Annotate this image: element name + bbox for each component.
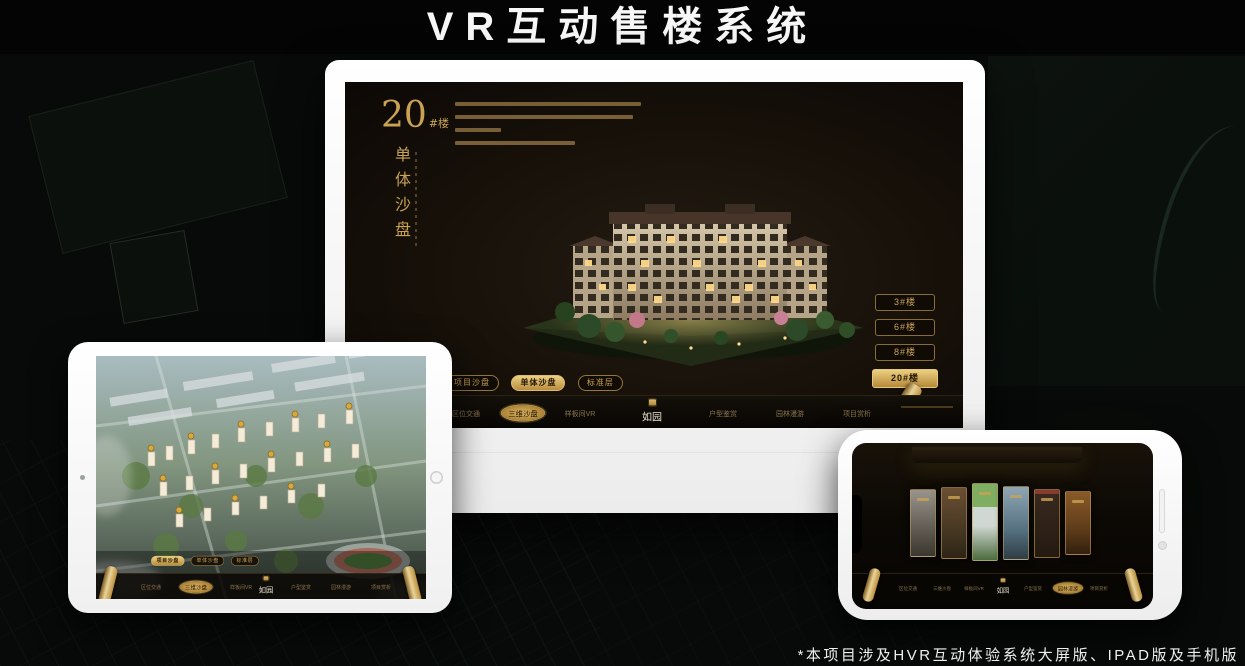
building-number-heading: 20#楼 (381, 98, 449, 134)
phone-nav-item-3d-sandtable[interactable]: 三维沙盘 (933, 583, 951, 591)
tablet-nav-item-location-traffic[interactable]: 区位交通 (141, 583, 161, 592)
nav-item-project-gallery[interactable]: 项目赏析 (843, 406, 871, 419)
description-line (455, 115, 633, 119)
phone-nav-item-model-room-vr[interactable]: 样板间VR (964, 583, 984, 591)
tablet-nav-bar: 区位交通 三维沙盘 样板间VR 如园 户型鉴赏 园林漫游 项目赏析 (96, 573, 426, 599)
phone-scene-ceiling (912, 447, 1082, 463)
nav-item-location-traffic[interactable]: 区位交通 (452, 406, 480, 419)
panel-label-ornament (917, 498, 929, 501)
description-line (455, 128, 501, 132)
promo-poster: VR互动售楼系统 20#楼 单体沙盘 (0, 0, 1245, 666)
panel-label-ornament (979, 492, 991, 495)
tab-project-sandtable[interactable]: 项目沙盘 (445, 375, 499, 391)
ruyuan-seal-icon (263, 576, 269, 582)
tablet-tab-row: 项目沙盘 单体沙盘 标准层 (151, 554, 259, 566)
building-number: 20 (381, 95, 427, 136)
gallery-panel-interior[interactable] (941, 487, 967, 559)
brand-logo: 如园 (642, 398, 662, 425)
description-line (455, 141, 575, 145)
floor-button-6[interactable]: 6#楼 (875, 319, 935, 336)
tablet-tab-standard-floor[interactable]: 标准层 (231, 556, 259, 566)
phone-camera-dot (1159, 542, 1166, 549)
panel-label-ornament (948, 496, 960, 499)
tablet-screen: 项目沙盘 单体沙盘 标准层 区位交通 三维沙盘 样板间VR 如园 户型鉴赏 园林… (96, 356, 426, 599)
nav-item-model-room-vr[interactable]: 样板间VR (565, 406, 596, 419)
gallery-panel-study[interactable] (1065, 491, 1091, 555)
desktop-tab-row: 项目沙盘 单体沙盘 标准层 (445, 372, 623, 391)
page-title: VR互动售楼系统 (0, 0, 1245, 54)
tablet-nav-item-model-room-vr[interactable]: 样板间VR (230, 583, 252, 592)
section-title-vertical: 单体沙盘 (389, 146, 413, 246)
tablet-home-button (430, 471, 443, 484)
phone-speaker-line (1160, 490, 1164, 532)
phone-notch (852, 495, 862, 553)
tab-standard-floor[interactable]: 标准层 (578, 375, 623, 391)
phone-nav-item-project-gallery[interactable]: 项目赏析 (1090, 583, 1108, 591)
panel-label-ornament (1010, 495, 1022, 498)
description-line (455, 102, 641, 106)
gallery-panel-courtyard[interactable] (910, 489, 936, 557)
nav-item-3d-sandtable[interactable]: 三维沙盘 (502, 405, 545, 421)
scroll-icon[interactable] (862, 567, 882, 603)
bg-river-shape (1136, 113, 1245, 326)
bg-photo-right (988, 56, 1245, 386)
phone-screen: 区位交通 三维沙盘 样板间VR 如园 户型鉴赏 园林漫游 项目赏析 (852, 443, 1153, 609)
gallery-panel-building[interactable] (1003, 486, 1029, 560)
tablet-camera-dot (80, 475, 85, 480)
title-bar: VR互动售楼系统 (0, 0, 1245, 54)
tablet-device-frame: 项目沙盘 单体沙盘 标准层 区位交通 三维沙盘 样板间VR 如园 户型鉴赏 园林… (68, 342, 452, 613)
vertical-subtitle-ornament (415, 152, 417, 248)
floor-button-3[interactable]: 3#楼 (875, 294, 935, 311)
tablet-brand-logo: 如园 (259, 576, 273, 597)
floor-button-8[interactable]: 8#楼 (875, 344, 935, 361)
scroll-icon[interactable] (1124, 567, 1144, 603)
building-3d-render (495, 160, 875, 372)
bg-panel-topleft (28, 60, 287, 254)
tablet-tab-single-sandtable[interactable]: 单体沙盘 (191, 556, 224, 566)
nav-item-garden-roam[interactable]: 园林漫游 (776, 406, 804, 419)
tablet-nav-item-floorplan[interactable]: 户型鉴赏 (291, 583, 311, 592)
aerial-masterplan-render (96, 356, 426, 599)
nav-item-floorplan[interactable]: 户型鉴赏 (709, 406, 737, 419)
gallery-panel-doors[interactable] (1034, 489, 1060, 558)
footnote-text: *本项目涉及HVR互动体验系统大屏版、IPAD版及手机版 (798, 644, 1239, 665)
brand-logo-text: 如园 (642, 412, 662, 423)
ruyuan-seal-icon (1000, 577, 1006, 582)
ruyuan-seal-icon (648, 398, 657, 406)
gallery-panel-garden[interactable] (972, 483, 998, 561)
bg-signboard (109, 230, 198, 324)
phone-nav-item-location-traffic[interactable]: 区位交通 (899, 583, 917, 591)
phone-device-frame: 区位交通 三维沙盘 样板间VR 如园 户型鉴赏 园林漫游 项目赏析 (838, 430, 1182, 620)
phone-nav-item-garden-roam[interactable]: 园林漫游 (1054, 582, 1083, 593)
panel-label-ornament (1072, 500, 1084, 503)
phone-brand-logo: 如园 (997, 577, 1010, 595)
phone-nav-bar: 区位交通 三维沙盘 样板间VR 如园 户型鉴赏 园林漫游 项目赏析 (852, 573, 1153, 601)
phone-nav-item-floorplan[interactable]: 户型鉴赏 (1024, 583, 1042, 591)
nav-right-ornament (901, 406, 953, 408)
tab-single-sandtable[interactable]: 单体沙盘 (511, 375, 565, 391)
tablet-nav-item-project-gallery[interactable]: 项目赏析 (371, 583, 391, 592)
floor-button-20-active[interactable]: 20#楼 (872, 369, 938, 388)
tablet-tab-project-sandtable[interactable]: 项目沙盘 (151, 556, 184, 566)
building-number-suffix: #楼 (429, 117, 449, 130)
tablet-nav-item-3d-sandtable[interactable]: 三维沙盘 (180, 581, 212, 593)
tablet-nav-item-garden-roam[interactable]: 园林漫游 (331, 583, 351, 592)
panel-label-ornament (1041, 498, 1053, 501)
